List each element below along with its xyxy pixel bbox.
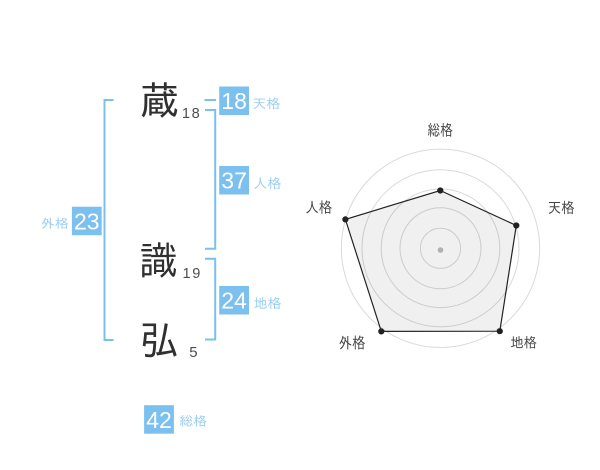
svg-text:19: 19: [183, 266, 202, 282]
svg-text:23: 23: [74, 208, 100, 234]
svg-text:18: 18: [221, 88, 247, 114]
svg-text:18: 18: [182, 106, 201, 122]
svg-text:42: 42: [146, 407, 172, 433]
svg-text:37: 37: [221, 168, 247, 194]
svg-text:5: 5: [189, 344, 197, 361]
svg-text:24: 24: [221, 288, 247, 314]
